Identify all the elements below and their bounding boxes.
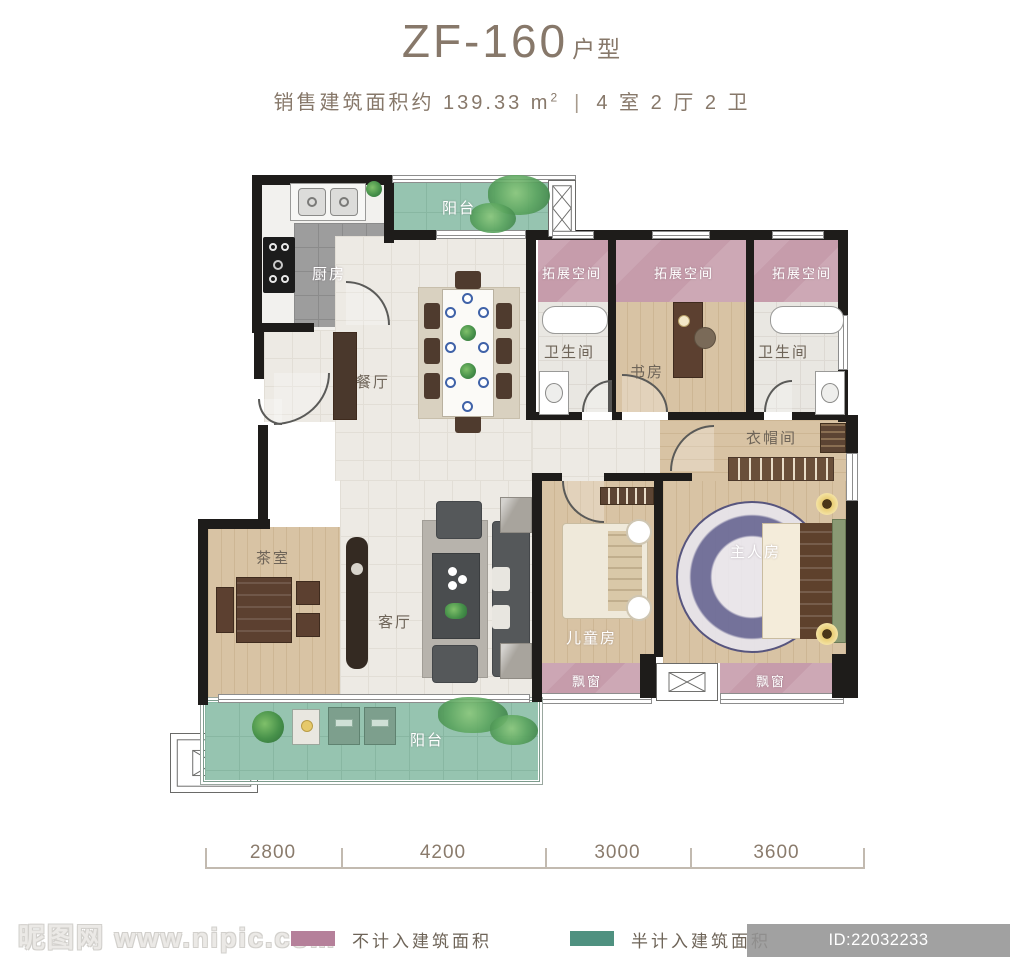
burner-icon <box>269 275 277 283</box>
tea-table-icon <box>236 577 292 643</box>
wall <box>258 425 268 529</box>
burner-icon <box>273 260 283 270</box>
bedside-lamp-icon <box>816 493 838 515</box>
burner-icon <box>269 243 277 251</box>
bathtub-icon <box>542 306 608 334</box>
subtitle-divider: | <box>574 92 582 115</box>
area-superscript: 2 <box>550 90 560 104</box>
wall <box>252 175 262 333</box>
watermark: 昵图网 www.nipic.com <box>18 916 336 955</box>
kids-wardrobe-icon <box>600 487 654 505</box>
dimension-value: 3600 <box>690 842 863 864</box>
wall <box>526 230 536 420</box>
sink-basin-icon <box>545 383 563 403</box>
burner-icon <box>281 275 289 283</box>
tea-stool-icon <box>296 613 320 637</box>
expansion3-window <box>772 231 824 239</box>
bed-blanket-icon <box>800 523 832 639</box>
tv-speaker-icon <box>351 563 363 575</box>
dimension-value: 2800 <box>205 842 341 864</box>
room-label-living: 客厅 <box>378 611 412 632</box>
layout-text: 4 室 2 厅 2 卫 <box>596 92 750 114</box>
room-label-kitchen: 厨房 <box>312 263 346 284</box>
room-label-balcony-bottom: 阳台 <box>410 729 444 750</box>
plan-subtitle: 销售建筑面积约 139.33 m2|4 室 2 厅 2 卫 <box>0 86 1024 115</box>
bay-window-right-glass <box>720 693 844 704</box>
plan-title: ZF-160户型 <box>0 14 1024 68</box>
round-pillow-icon <box>626 595 652 621</box>
expansion2-window <box>652 231 710 239</box>
dining-chair-icon <box>424 373 440 399</box>
plate-icon <box>462 293 473 304</box>
tea-stool-icon <box>296 581 320 605</box>
plan-code: ZF-160 <box>402 15 568 67</box>
wardrobe-unit-icon <box>820 423 846 453</box>
room-label-master-bedroom: 主人房 <box>730 541 781 562</box>
room-label-dining: 餐厅 <box>356 371 390 392</box>
plan-code-suffix: 户型 <box>572 36 622 62</box>
dimension-value: 4200 <box>341 842 545 864</box>
plate-icon <box>462 401 473 412</box>
floorplan-page: ZF-160户型 销售建筑面积约 139.33 m2|4 室 2 厅 2 卫 <box>0 0 1024 970</box>
cloakroom-window <box>846 453 858 501</box>
side-table-icon <box>500 643 532 679</box>
expansion1-window <box>552 231 594 239</box>
watermark-id-badge: ID:22032233 NO:20231020105910601107 <box>747 924 1010 957</box>
floorplan-canvas: 厨房 阳台 餐厅 拓展空间 拓展空间 拓展空间 卫生间 书房 卫生间 衣帽间 主… <box>170 175 872 800</box>
ac-platform-center <box>656 663 718 701</box>
room-label-expansion-1: 拓展空间 <box>542 263 602 282</box>
burner-icon <box>281 243 289 251</box>
wall <box>612 412 622 420</box>
watermark-site-name: 昵图网 <box>18 923 105 953</box>
washer-lid-icon <box>371 719 389 727</box>
crossed-box-icon <box>657 664 717 700</box>
room-label-cloakroom: 衣帽间 <box>746 427 797 448</box>
room-label-tea-room: 茶室 <box>256 547 290 568</box>
bed-headboard-icon <box>832 519 846 643</box>
dish-icon <box>458 575 467 584</box>
desk-chair-icon <box>694 327 716 349</box>
legend-swatch-half-counted <box>570 931 614 946</box>
wall <box>640 654 656 698</box>
tv-cabinet-icon <box>346 537 368 669</box>
wall <box>832 654 858 698</box>
room-label-bathroom-left: 卫生间 <box>544 341 595 362</box>
plate-icon <box>478 377 489 388</box>
sink-drain-icon <box>307 197 317 207</box>
plant-icon <box>490 715 538 745</box>
plate-icon <box>445 307 456 318</box>
table-plant-icon <box>460 363 476 379</box>
entrance-door-leaf2-arc <box>258 399 282 425</box>
sink-drain-icon <box>339 197 349 207</box>
table-plant-icon <box>445 603 467 619</box>
plant-icon <box>470 203 516 233</box>
washer-lid-icon <box>335 719 353 727</box>
crossed-box-icon <box>549 181 575 236</box>
wall <box>668 412 764 420</box>
dining-chair-icon <box>496 303 512 329</box>
bathtub-icon <box>770 306 844 334</box>
hallway-floor <box>532 420 662 481</box>
dimension-value: 3000 <box>545 842 690 864</box>
dining-chair-icon <box>455 271 481 289</box>
tea-bench-icon <box>216 587 234 633</box>
dining-chair-icon <box>455 415 481 433</box>
room-label-expansion-2: 拓展空间 <box>654 263 714 282</box>
plate-icon <box>478 307 489 318</box>
wall <box>254 327 264 379</box>
bay-window-left-glass <box>540 693 652 704</box>
area-text: 销售建筑面积约 139.33 m <box>274 92 551 114</box>
wall <box>604 473 692 481</box>
wall <box>198 519 270 529</box>
plate-icon <box>445 342 456 353</box>
armchair-icon <box>436 501 482 539</box>
plate-icon <box>445 377 456 388</box>
armchair-icon <box>432 645 478 683</box>
sink-basin-icon <box>821 383 839 403</box>
legend-label-excluded: 不计入建筑面积 <box>352 927 492 952</box>
sofa-pillow-icon <box>492 567 510 591</box>
wall <box>532 473 542 702</box>
dining-chair-icon <box>496 373 512 399</box>
side-table-icon <box>500 497 532 533</box>
wall <box>746 240 754 412</box>
wall <box>384 230 436 240</box>
room-label-bathroom-right: 卫生间 <box>758 341 809 362</box>
dining-chair-icon <box>496 338 512 364</box>
plant-icon <box>366 181 382 197</box>
dining-chair-icon <box>424 338 440 364</box>
room-label-kids-room: 儿童房 <box>566 627 617 648</box>
dimension-baseline <box>205 867 865 869</box>
sofa-pillow-icon <box>492 605 510 629</box>
entry-cabinet-icon <box>333 332 357 420</box>
room-label-bay-window-right: 飘窗 <box>756 671 786 690</box>
plate-icon <box>478 342 489 353</box>
room-label-bay-window-left: 飘窗 <box>572 671 602 690</box>
dining-chair-icon <box>424 303 440 329</box>
dimension-tick <box>863 848 865 869</box>
dish-icon <box>448 567 457 576</box>
room-label-expansion-3: 拓展空间 <box>772 263 832 282</box>
wall <box>198 519 208 705</box>
lounge-cushion-icon <box>301 720 313 732</box>
room-label-study: 书房 <box>630 361 664 382</box>
table-plant-icon <box>460 325 476 341</box>
wall <box>654 481 663 657</box>
round-pillow-icon <box>626 519 652 545</box>
coffee-table-icon <box>432 553 480 639</box>
dish-icon <box>448 581 457 590</box>
shaft-box <box>548 180 576 237</box>
legend-swatch-excluded <box>291 931 335 946</box>
room-label-balcony-top: 阳台 <box>442 197 476 218</box>
desk-lamp-icon <box>678 315 690 327</box>
wardrobe-rack-icon <box>728 457 834 481</box>
bedside-lamp-icon <box>816 623 838 645</box>
plant-icon <box>252 711 284 743</box>
